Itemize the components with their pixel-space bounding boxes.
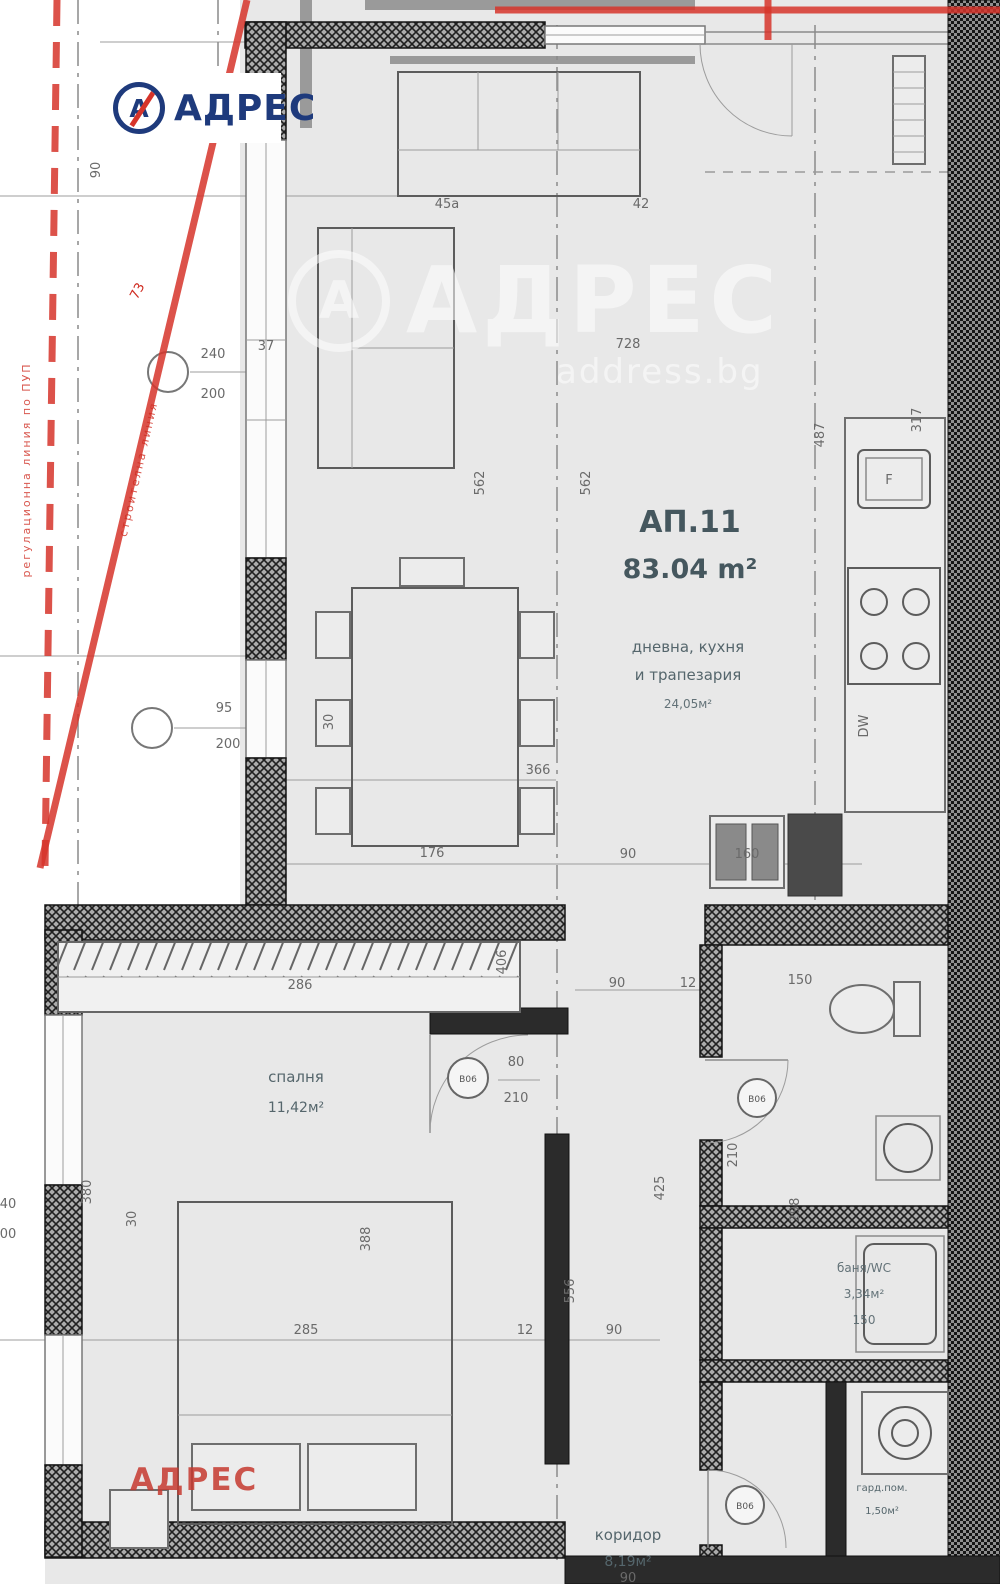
bath-label: баня/WC (837, 1261, 891, 1275)
dim-label: 30 (125, 1211, 140, 1228)
storage-label: гард.пом. (856, 1483, 907, 1494)
dim-label: 562 (579, 471, 594, 496)
dim-label: 406 (495, 950, 510, 975)
floor-plan-page: В06 В06 В06 регулационна линия по ПУП ст… (0, 0, 1000, 1584)
door-tag-label: В06 (736, 1502, 754, 1512)
door-tag-label: В06 (748, 1095, 766, 1105)
dim-label: 90 (620, 847, 637, 862)
corridor-label: коридор (595, 1526, 662, 1544)
living-room-label: и трапезария (635, 666, 741, 684)
dim-label: 388 (359, 1227, 374, 1252)
bedroom-label: спалня (268, 1068, 324, 1086)
agency-logo-icon: А (113, 82, 165, 134)
kitchen-sink-label: F (885, 473, 892, 488)
dim-label: 90 (609, 976, 626, 991)
dim-label: 728 (616, 337, 641, 352)
dim-label: 487 (813, 423, 828, 448)
dim-label: 00 (0, 1227, 16, 1242)
agency-logo-text: АДРЕС (174, 88, 316, 129)
dim-label: 73 (127, 281, 148, 303)
dim-label: 425 (653, 1176, 668, 1201)
dishwasher-label: DW (857, 714, 872, 737)
dim-label: 150 (788, 973, 813, 988)
dim-label: 317 (910, 408, 925, 433)
dim-label: 12 (517, 1323, 534, 1338)
dim-label: 286 (288, 978, 313, 993)
corridor-area: 8,19м² (604, 1554, 651, 1570)
dim-label: 95 (216, 701, 233, 716)
dim-label: 42 (633, 197, 650, 212)
dim-label: 12 (680, 976, 697, 991)
dim-label: 298 (788, 1198, 803, 1223)
apartment-id: АП.11 (639, 505, 740, 540)
apartment-area: 83.04 m² (623, 554, 758, 585)
floor-plan-svg: В06 В06 В06 регулационна линия по ПУП ст… (0, 0, 1000, 1584)
dim-label: 160 (735, 847, 760, 862)
dim-label: 80 (508, 1055, 525, 1070)
living-room-area: 24,05м² (664, 697, 712, 711)
dim-label: 210 (726, 1143, 741, 1168)
door-tag-2: В06 (738, 1079, 776, 1117)
dim-label: 380 (80, 1180, 95, 1205)
dim-label: 210 (504, 1091, 529, 1106)
boundary-line-label: строителна линия (117, 400, 161, 537)
dim-label: 556 (563, 1279, 578, 1304)
dim-label: 200 (201, 387, 226, 402)
dim-label: 240 (201, 347, 226, 362)
dim-label: 562 (473, 471, 488, 496)
dim-label: 40 (0, 1197, 16, 1212)
storage-area: 1,50м² (865, 1506, 899, 1517)
window-tag-2 (132, 708, 172, 748)
dim-label: 90 (620, 1571, 637, 1584)
living-room-label: дневна, кухня (632, 638, 744, 656)
dim-label: 90 (606, 1323, 623, 1338)
door-tag-label: В06 (459, 1075, 477, 1085)
dim-label: 37 (258, 339, 275, 354)
bath-width: 150 (853, 1313, 876, 1327)
dim-label: 200 (216, 737, 241, 752)
dim-label: 90 (89, 162, 104, 179)
agency-logo: А АДРЕС (103, 73, 281, 143)
red-watermark-text: АДРЕС (130, 1462, 258, 1498)
dim-label: 176 (420, 846, 445, 861)
dim-label: 30 (322, 714, 337, 731)
bath-area: 3,34м² (844, 1287, 885, 1301)
dim-label: 45а (435, 197, 460, 212)
bedroom-area: 11,42м² (268, 1100, 324, 1116)
dim-label: 366 (526, 763, 551, 778)
dim-label: 285 (294, 1323, 319, 1338)
door-tag-1: В06 (448, 1058, 488, 1098)
door-tag-3: В06 (726, 1486, 764, 1524)
boundary-line-label: регулационна линия по ПУП (20, 362, 33, 577)
